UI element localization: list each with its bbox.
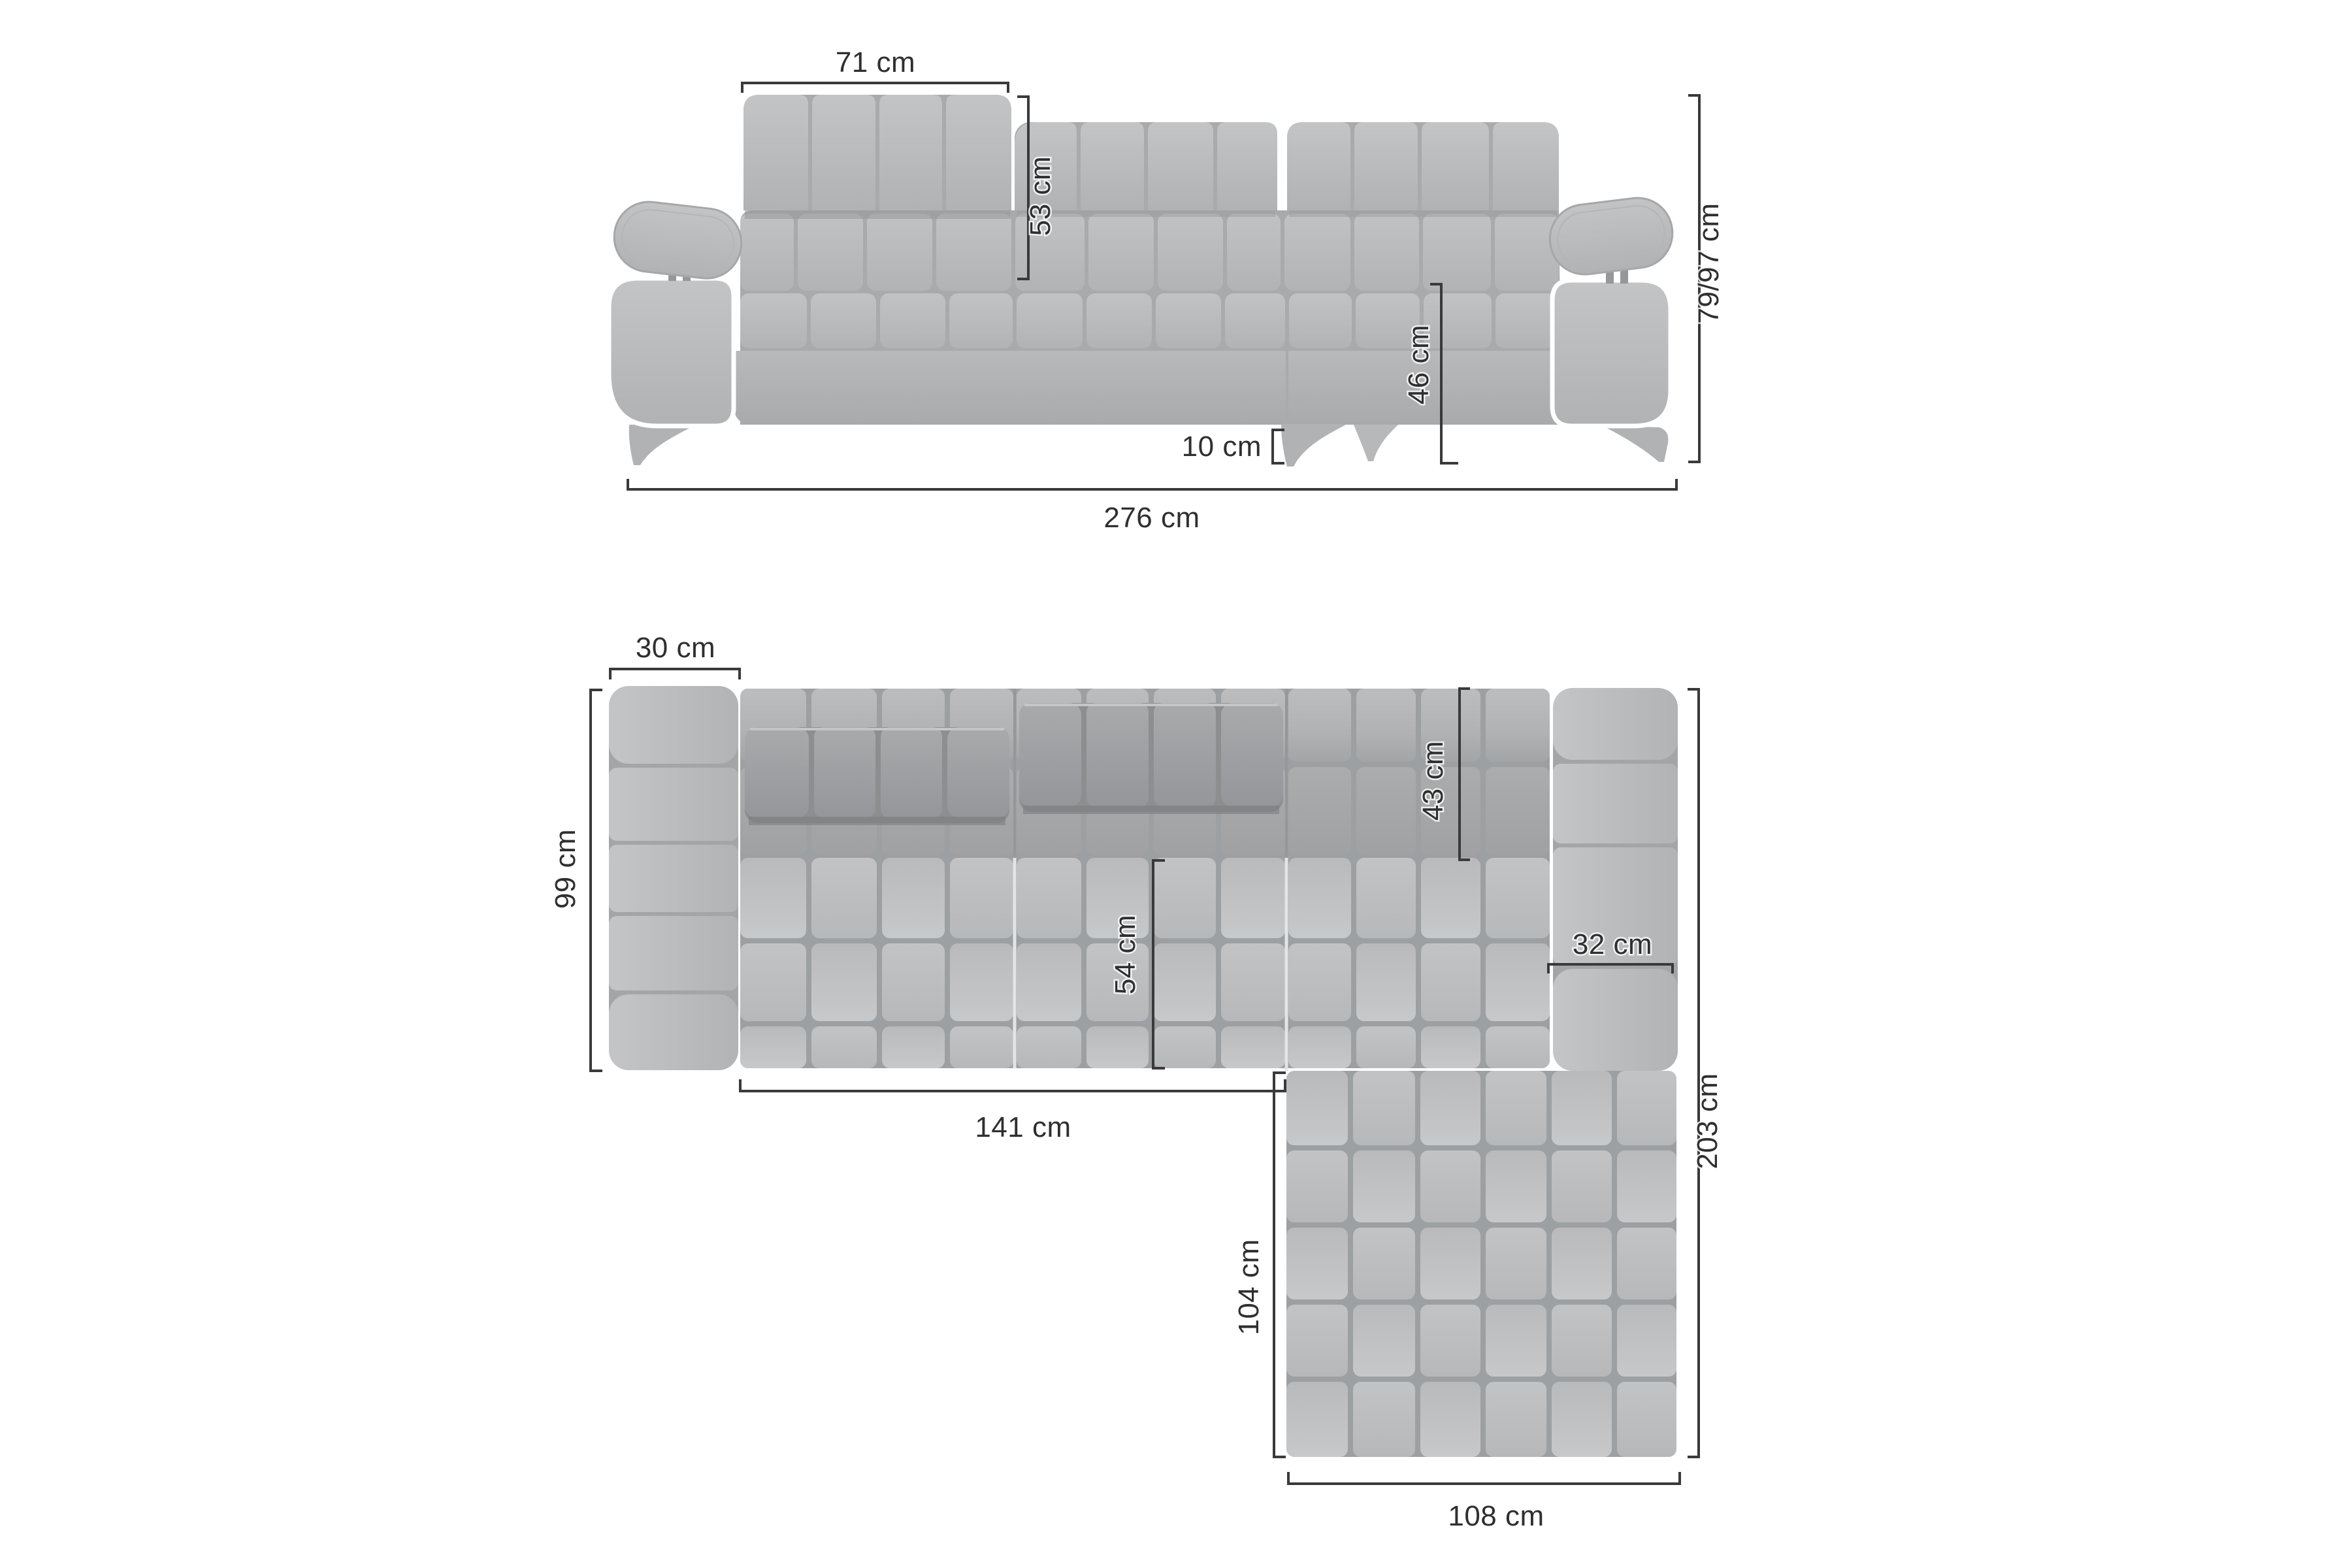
svg-text:43 cm: 43 cm: [1417, 741, 1449, 821]
svg-text:54 cm: 54 cm: [1109, 915, 1141, 994]
svg-text:79/97 cm: 79/97 cm: [1693, 203, 1725, 324]
svg-text:46 cm: 46 cm: [1403, 325, 1435, 404]
svg-text:141 cm: 141 cm: [975, 1111, 1071, 1143]
svg-text:203 cm: 203 cm: [1691, 1073, 1723, 1169]
svg-text:10 cm: 10 cm: [1182, 431, 1262, 463]
svg-text:276 cm: 276 cm: [1103, 502, 1200, 534]
svg-text:30 cm: 30 cm: [636, 632, 715, 664]
svg-text:32 cm: 32 cm: [1573, 928, 1652, 960]
svg-text:71 cm: 71 cm: [836, 46, 915, 78]
svg-text:104 cm: 104 cm: [1233, 1239, 1265, 1335]
svg-text:99 cm: 99 cm: [549, 829, 581, 909]
svg-text:108 cm: 108 cm: [1448, 1500, 1544, 1532]
svg-text:53 cm: 53 cm: [1024, 156, 1056, 236]
